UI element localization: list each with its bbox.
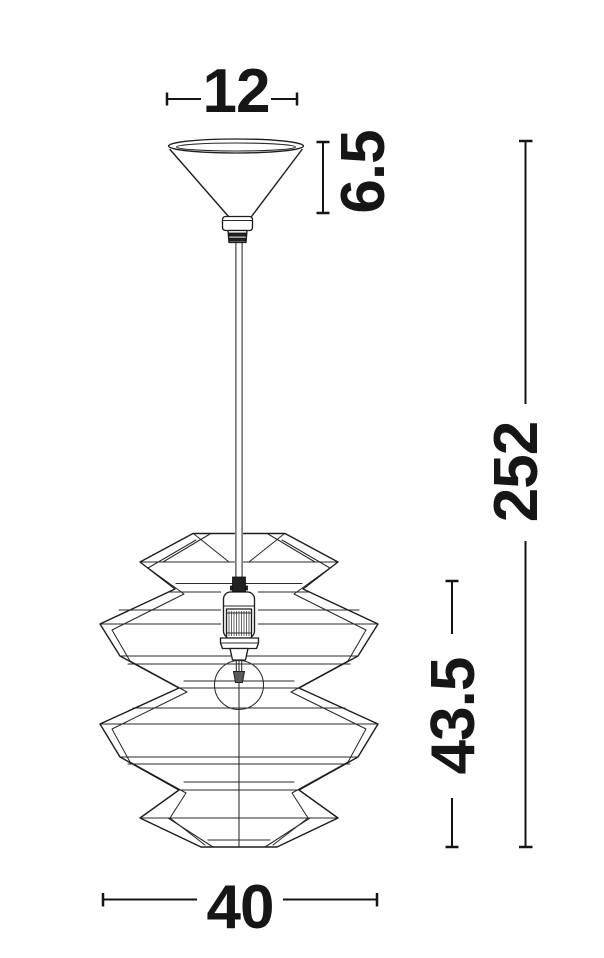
canopy-width-label: 12 <box>203 57 270 126</box>
power-cord <box>231 242 248 592</box>
technical-drawing-canvas: 12 6.5 252 43.5 40 <box>0 0 604 958</box>
cord-grip <box>233 577 246 592</box>
dim-shade-width: 40 <box>103 873 377 942</box>
canopy-height-label: 6.5 <box>329 130 398 213</box>
shade-width-label: 40 <box>207 873 274 942</box>
dim-canopy-width: 12 <box>167 57 297 126</box>
bulb-neck <box>230 649 248 661</box>
pendant-lamp-dimension-drawing: 12 6.5 252 43.5 40 <box>0 0 604 958</box>
dim-canopy-height: 6.5 <box>317 130 399 213</box>
canopy-cup <box>223 217 253 231</box>
dim-shade-height: 43.5 <box>419 581 488 847</box>
total-height-label: 252 <box>482 422 551 522</box>
bulb-filament-stem <box>234 672 245 683</box>
lamp-socket <box>221 590 259 660</box>
shade-height-label: 43.5 <box>419 658 488 775</box>
ceiling-canopy <box>169 139 304 243</box>
dim-total-height: 252 <box>482 141 551 847</box>
